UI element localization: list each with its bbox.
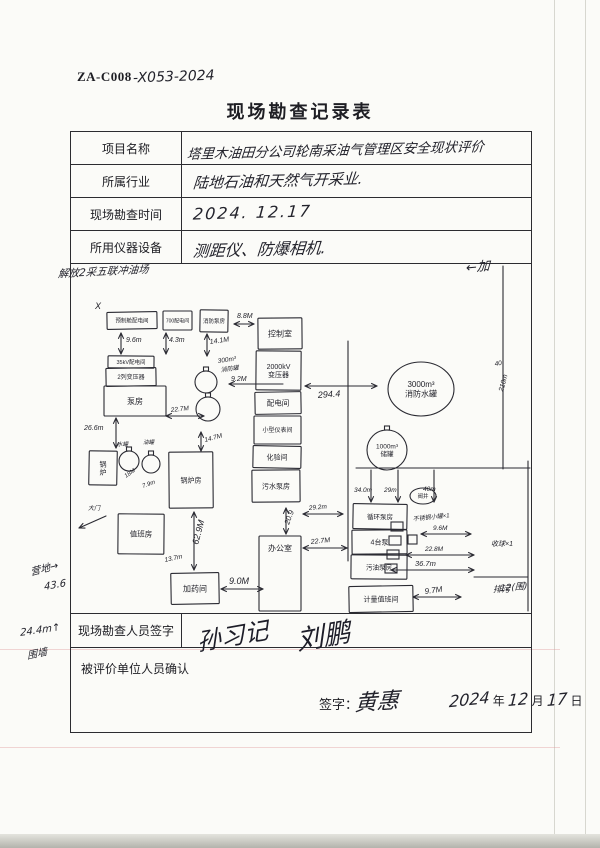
sketch-pump <box>408 535 417 544</box>
sketch-dim: 9.2M <box>231 376 247 383</box>
sketch-dim: 大门 <box>88 504 101 512</box>
sketch-tank-label: 1000m³ <box>376 443 399 450</box>
margin-note: 43.6 <box>44 578 66 593</box>
sketch-tank-cap <box>385 426 390 430</box>
form-code: ZA-C008-X053-2024 <box>77 68 214 86</box>
sketch-dim: 不锈钢小罐×1 <box>412 511 449 523</box>
sketch-box-label: 变压器 <box>268 370 289 379</box>
sketch-dim: 4.3m <box>169 337 185 344</box>
sketch-box-label: 化验间 <box>267 452 288 461</box>
sketch-tank-label: 3000m³ <box>407 380 434 389</box>
form-row-instruments: 所用仪器设备 测距仪、防爆相机. <box>71 231 531 264</box>
sketch-dim: 29m <box>383 487 397 494</box>
row-label: 项目名称 <box>71 132 182 164</box>
confirmation-label: 被评价单位人员确认 <box>81 660 189 677</box>
instruments-value: 测距仪、防爆相机. <box>192 234 327 262</box>
sketch-dim: 26.6m <box>83 425 104 432</box>
confirm-date-month-suffix: 月 <box>532 692 545 709</box>
industry-value: 陆地石油和天然气开采业. <box>192 168 363 193</box>
sketch-dim: 7.9m <box>142 480 157 490</box>
sketch-box-label: 办公室 <box>268 543 292 553</box>
confirmation-row: 被评价单位人员确认 签字： 黄惠 2024 年 12 月 17 日 <box>71 648 531 732</box>
margin-note: ←加 <box>466 255 491 276</box>
sketch-box-label: 小型仪表间 <box>262 426 292 434</box>
sketch-tank-cap <box>204 367 209 371</box>
sketch-dim: 300m³ <box>217 355 237 365</box>
sketch-box-label: 加药间 <box>183 583 207 593</box>
sketch-pump <box>389 536 401 545</box>
sketch-arrow <box>79 516 106 528</box>
scan-artifact-line <box>0 747 560 748</box>
sketch-box-label: 2000kV <box>267 364 291 371</box>
sketch-dim: 40 <box>494 360 503 368</box>
sketch-box-label: 循环泵房 <box>367 512 393 521</box>
sketch-tank <box>196 397 220 421</box>
sketch-dim: 29.2m <box>308 503 328 512</box>
confirm-sign-name: 黄惠 <box>354 682 400 717</box>
sketch-dim: 22.7M <box>309 537 330 546</box>
scan-edge-line <box>554 0 555 848</box>
confirm-date: 2024 年 12 月 17 日 <box>449 690 583 709</box>
scan-page: ZA-C008-X053-2024 现场勘查记录表 项目名称 塔里木油田分公司轮… <box>0 0 600 848</box>
sketch-box-label: 700配电间 <box>166 317 189 324</box>
scan-edge-line <box>585 0 586 848</box>
row-label: 所属行业 <box>71 165 182 197</box>
sketch-box-label: 配电间 <box>267 398 290 408</box>
confirm-date-day-suffix: 日 <box>570 692 583 709</box>
sketch-dim: 22.8M <box>424 546 444 553</box>
sketch-dim: 9.0M <box>229 576 250 586</box>
form-row-project: 项目名称 塔里木油田分公司轮南采油气管理区安全现状评价 <box>71 132 531 165</box>
confirm-date-month: 12 <box>508 689 530 710</box>
sketch-dim: 294.4 <box>316 388 340 400</box>
confirm-date-year: 2024 <box>448 688 490 712</box>
sketch-box-label: 4台泵 <box>371 537 389 546</box>
sketch-dim: 油罐 <box>143 439 156 446</box>
site-sketch-cell: 预制舱配电间700配电间消防泵房控制室2000kV变压器配电间小型仪表间化验间污… <box>71 264 531 614</box>
sketch-box-label: 值班房 <box>130 529 153 539</box>
sketch-tank <box>195 371 217 393</box>
site-sketch: 预制舱配电间700配电间消防泵房控制室2000kV变压器配电间小型仪表间化验间污… <box>71 264 531 614</box>
row-label: 所用仪器设备 <box>71 231 182 263</box>
sketch-box-label: 锅炉房 <box>181 475 202 484</box>
sketch-dim: 36.7m <box>415 559 436 568</box>
sketch-dim: 9.7M <box>424 585 443 596</box>
sketch-box-label: 控制室 <box>268 328 292 338</box>
sketch-tank-label: 储罐 <box>381 449 395 458</box>
form-row-industry: 所属行业 陆地石油和天然气开采业. <box>71 165 531 198</box>
sketch-dim: 40m <box>423 486 436 493</box>
sketch-box-label: 炉 <box>100 468 107 477</box>
margin-note: 围墙 <box>27 643 48 662</box>
record-table: 项目名称 塔里木油田分公司轮南采油气管理区安全现状评价 所属行业 陆地石油和天然… <box>70 131 532 733</box>
sketch-tank-label: 阀井 <box>417 492 429 500</box>
sketch-box-label: 泵房 <box>127 396 143 406</box>
form-code-printed: ZA-C008 <box>77 69 132 84</box>
sketch-tank <box>119 451 139 471</box>
sketch-dim: 14.7M <box>204 432 224 444</box>
sketch-dim: X <box>94 301 102 311</box>
sketch-dim: 14.1M <box>209 336 229 346</box>
sketch-pump <box>387 550 399 559</box>
row-label: 现场勘查时间 <box>71 198 182 230</box>
sketch-dim: 水罐 <box>117 441 130 448</box>
sketch-dim: 9.6m <box>126 337 142 344</box>
margin-note: 12(围) <box>500 579 528 595</box>
form-row-survey-time: 现场勘查时间 2024. 12.17 <box>71 198 531 231</box>
sketch-dim: 62.9M <box>190 518 206 545</box>
sketch-box-label: 锅 <box>100 459 107 468</box>
sketch-dim: 消防罐 <box>220 363 240 374</box>
row-label: 现场勘查人员签字 <box>71 614 182 647</box>
form-code-handwritten: -X053-2024 <box>133 68 215 87</box>
sketch-dim: 13.7m <box>164 553 184 564</box>
sketch-box-label: 污水泵房 <box>262 481 290 490</box>
surveyor-signature-row: 现场勘查人员签字 孙习记 刘鹏 <box>71 614 531 648</box>
sign-label: 签字： <box>319 694 358 713</box>
sketch-dim: 8.8M <box>237 313 253 320</box>
page-title: 现场勘查记录表 <box>70 98 530 124</box>
sketch-dim: 34.0m <box>354 487 373 494</box>
sketch-dim: 22.7M <box>169 405 189 414</box>
sketch-dim: 9.6M <box>433 525 448 532</box>
sketch-box-label: 消防泵房 <box>203 317 226 325</box>
scan-bottom-shadow <box>0 834 600 848</box>
sketch-tank-cap <box>206 393 211 397</box>
sketch-box-label: 计量值班间 <box>364 594 399 603</box>
sketch-box-label: 35kV配电间 <box>116 358 145 366</box>
margin-note: 营地→ <box>30 556 59 578</box>
confirm-date-year-suffix: 年 <box>493 692 506 709</box>
sketch-tank-cap <box>149 451 154 455</box>
sketch-dim: 收球×1 <box>491 540 513 548</box>
sketch-dim: 210m <box>498 374 510 394</box>
margin-note: 24.4m↑ <box>20 622 60 639</box>
sketch-box-label: 预制舱配电间 <box>115 316 148 324</box>
sketch-tank <box>142 455 160 473</box>
survey-time-value: 2024. 12.17 <box>192 201 312 223</box>
sketch-tank-label: 消防水罐 <box>405 389 437 399</box>
sketch-box-label: 2列变压器 <box>117 373 144 381</box>
confirm-date-day: 17 <box>546 689 568 710</box>
project-name-value: 塔里木油田分公司轮南采油气管理区安全现状评价 <box>186 135 484 163</box>
